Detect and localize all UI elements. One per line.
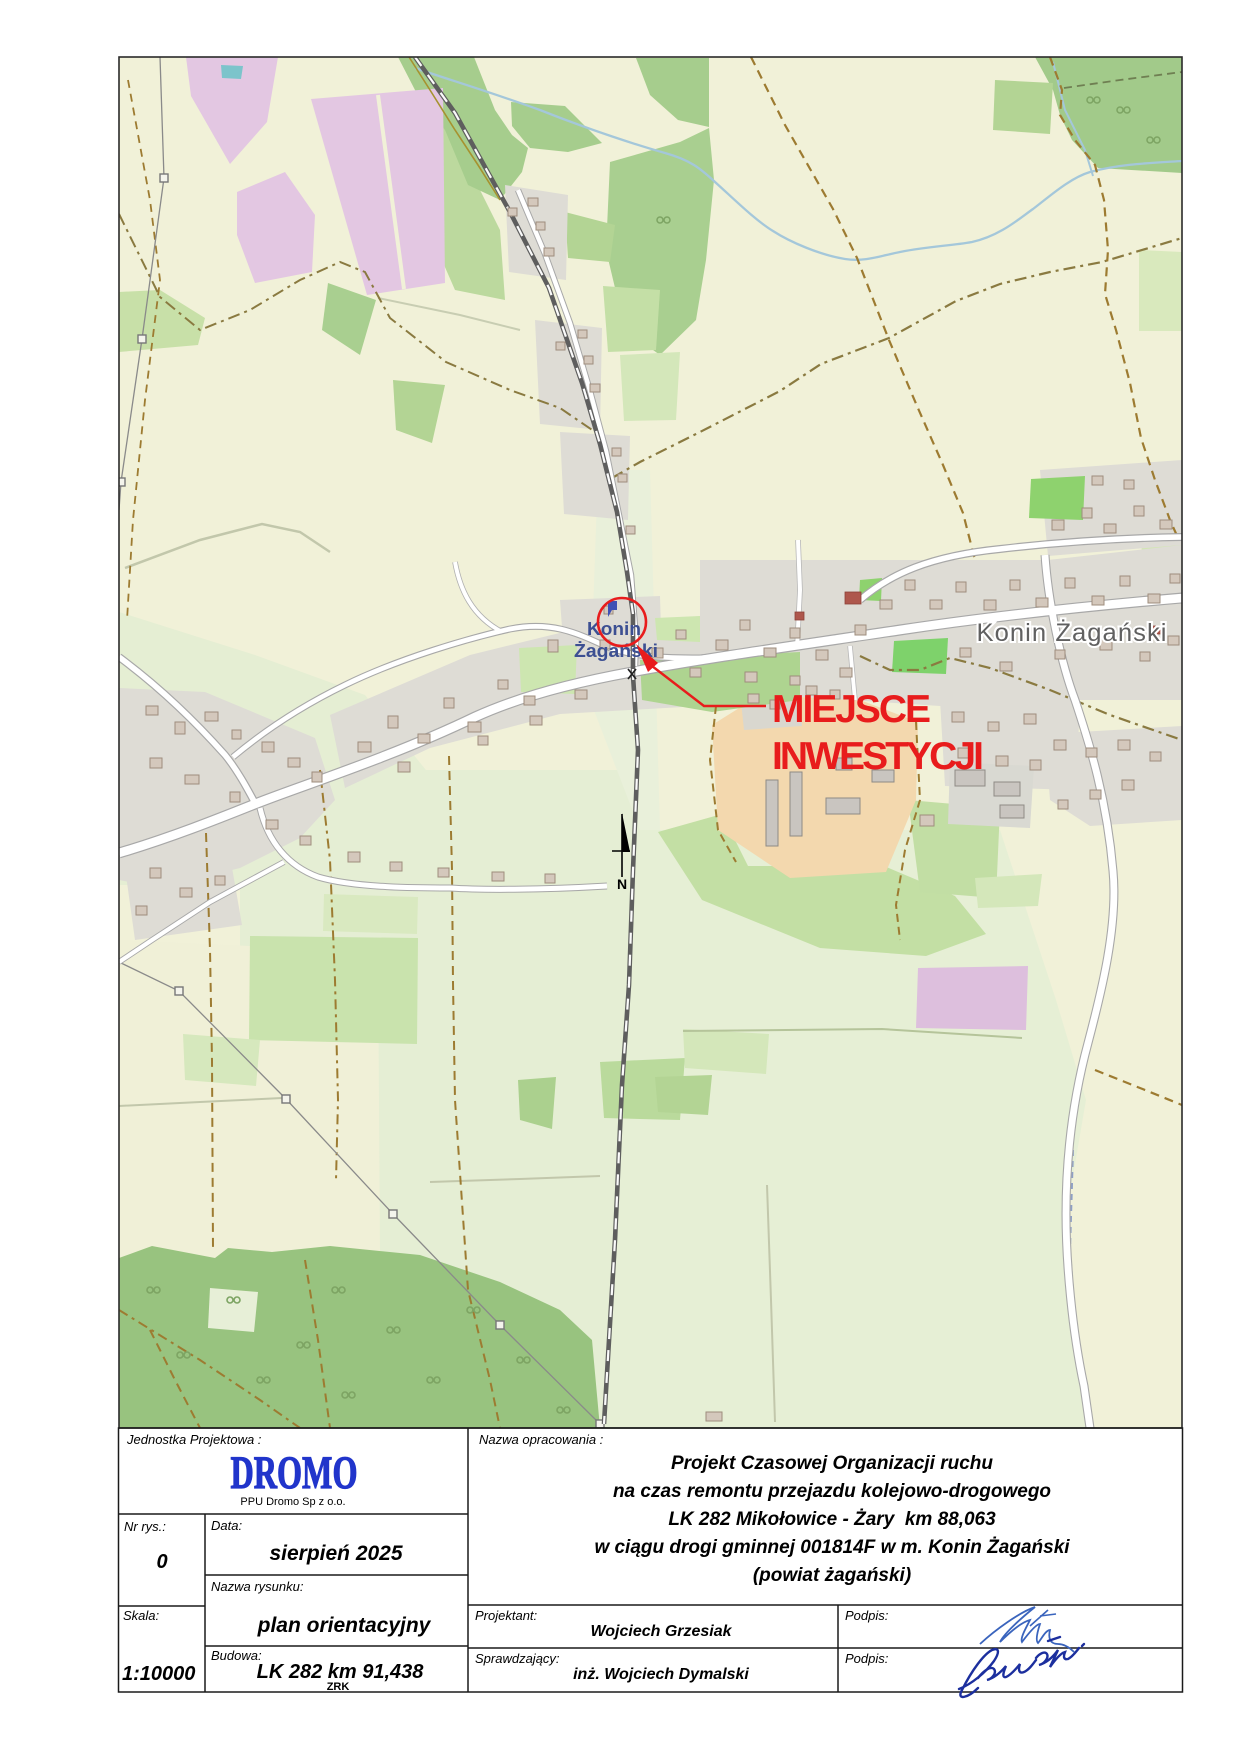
svg-text:Podpis:: Podpis: xyxy=(845,1651,889,1666)
svg-text:Projektant:: Projektant: xyxy=(475,1608,538,1623)
svg-text:Sprawdzający:: Sprawdzający: xyxy=(475,1651,560,1666)
svg-text:plan orientacyjny: plan orientacyjny xyxy=(257,1614,432,1637)
svg-text:Data:: Data: xyxy=(211,1518,242,1533)
svg-text:1:10000: 1:10000 xyxy=(122,1663,195,1685)
svg-text:Podpis:: Podpis: xyxy=(845,1608,889,1623)
svg-text:Budowa:: Budowa: xyxy=(211,1648,262,1663)
svg-text:LK 282 Mikołowice - Żary km 8: LK 282 Mikołowice - Żary km 88,063 xyxy=(668,1509,996,1530)
svg-text:N: N xyxy=(617,876,627,892)
svg-text:Jednostka Projektowa :: Jednostka Projektowa : xyxy=(126,1432,262,1447)
svg-text:Nazwa opracowania :: Nazwa opracowania : xyxy=(479,1432,604,1447)
svg-text:INWESTYCJI: INWESTYCJI xyxy=(772,735,984,778)
svg-text:Skala:: Skala: xyxy=(123,1608,160,1623)
svg-text:Nr rys.:: Nr rys.: xyxy=(124,1519,166,1534)
svg-text:Nazwa rysunku:: Nazwa rysunku: xyxy=(211,1579,304,1594)
svg-text:sierpień 2025: sierpień 2025 xyxy=(269,1542,402,1565)
svg-text:(powiat żagański): (powiat żagański) xyxy=(753,1565,911,1586)
svg-text:Wojciech Grzesiak: Wojciech Grzesiak xyxy=(590,1623,732,1640)
svg-text:DROMO: DROMO xyxy=(231,1447,358,1499)
svg-text:w ciągu drogi gminnej 001814F: w ciągu drogi gminnej 001814F w m. Konin… xyxy=(594,1537,1070,1558)
svg-text:na czas remontu przejazdu kole: na czas remontu przejazdu kolejowo-drogo… xyxy=(613,1481,1051,1502)
svg-text:Konin Żagański: Konin Żagański xyxy=(977,618,1168,647)
svg-text:LK 282 km 91,438: LK 282 km 91,438 xyxy=(257,1661,425,1683)
svg-text:Konin: Konin xyxy=(587,619,641,639)
svg-text:PPU Dromo Sp z o.o.: PPU Dromo Sp z o.o. xyxy=(240,1496,345,1508)
svg-text:MIEJSCE: MIEJSCE xyxy=(772,688,931,731)
svg-text:0: 0 xyxy=(156,1551,167,1573)
svg-text:Projekt Czasowej Organizacji r: Projekt Czasowej Organizacji ruchu xyxy=(671,1453,993,1474)
svg-text:inż. Wojciech Dymalski: inż. Wojciech Dymalski xyxy=(573,1666,749,1683)
svg-text:ZRK: ZRK xyxy=(327,1681,350,1693)
